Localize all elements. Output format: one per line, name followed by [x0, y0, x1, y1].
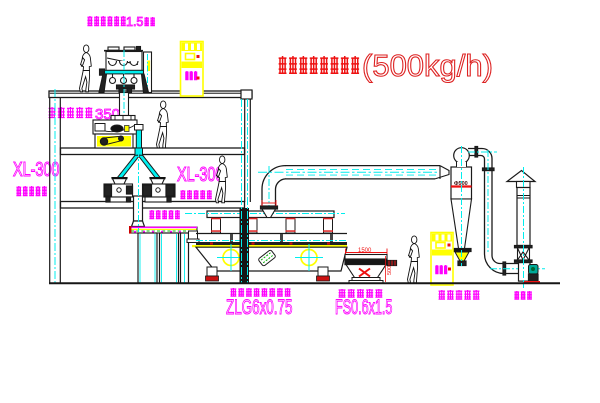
svg-text:XL-300: XL-300	[13, 158, 59, 181]
svg-text:FS0.6x1.5: FS0.6x1.5	[335, 295, 392, 319]
svg-text:1500: 1500	[358, 248, 372, 254]
svg-text:ZLG6x0.75: ZLG6x0.75	[226, 295, 293, 319]
svg-text:Φ500: Φ500	[454, 181, 468, 187]
svg-text:XL-300: XL-300	[177, 163, 223, 186]
svg-text:500: 500	[387, 266, 393, 275]
svg-text:1.5: 1.5	[126, 15, 143, 29]
svg-text:(500kg/h): (500kg/h)	[362, 48, 493, 83]
